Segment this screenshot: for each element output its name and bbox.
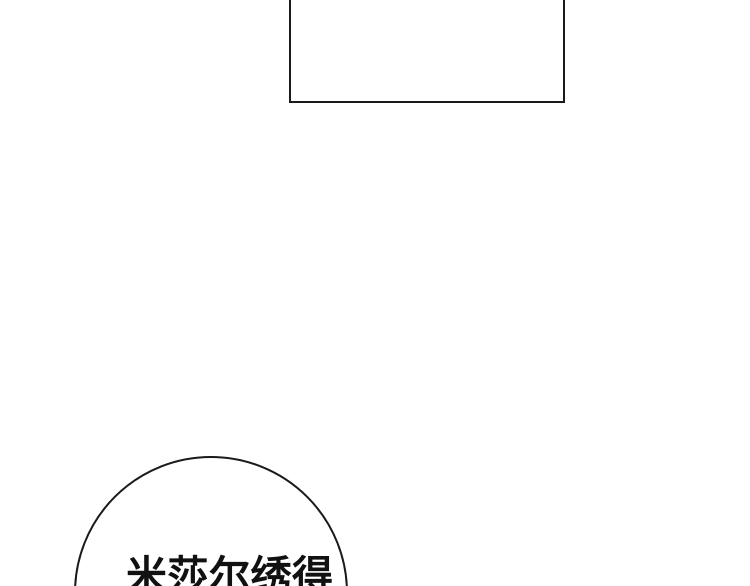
speech-bubble-text: 米莎尔绣得: [126, 554, 334, 586]
comic-page: 米莎尔绣得: [0, 0, 750, 586]
comic-panel-rect: [289, 0, 565, 103]
